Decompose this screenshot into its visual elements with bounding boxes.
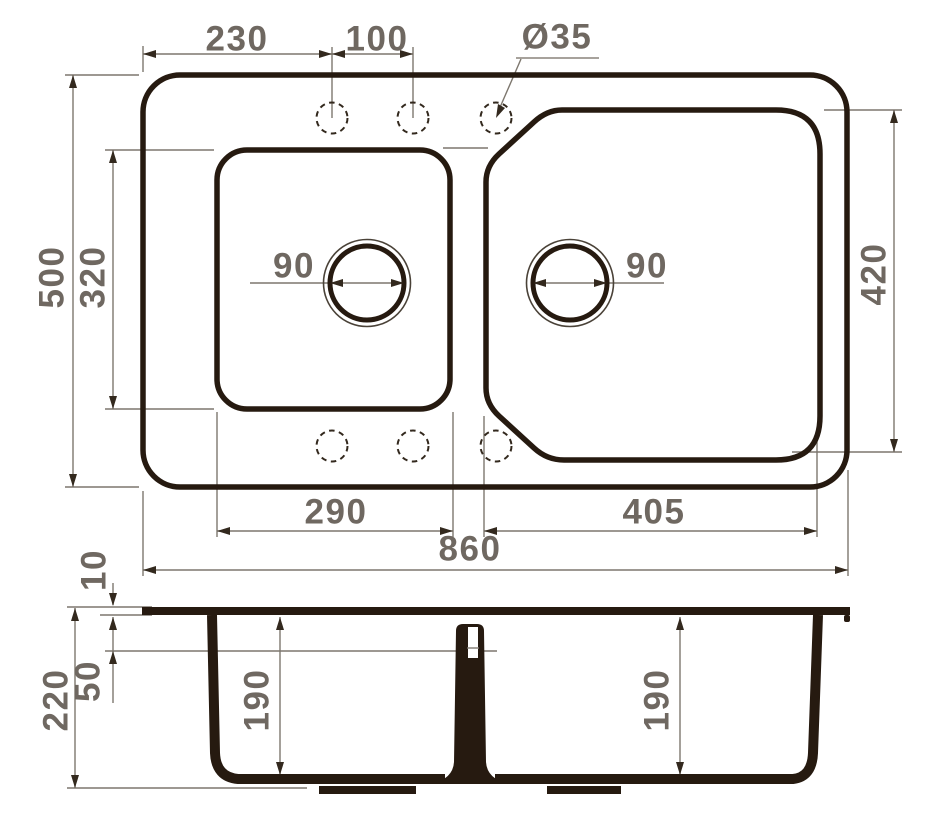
dim-overall-height: 220 bbox=[37, 669, 76, 732]
faucet-hole-bottom-2 bbox=[398, 431, 429, 462]
dim-right-bowl-width: 405 bbox=[623, 493, 686, 532]
dim-left-bowl-depth: 190 bbox=[238, 669, 277, 732]
dim-faucet-offset: 230 bbox=[206, 20, 269, 59]
dim-overall-width: 860 bbox=[439, 530, 502, 569]
left-bowl-outline bbox=[217, 150, 450, 409]
section-rim-right-edge bbox=[844, 615, 850, 622]
dim-right-drain: 90 bbox=[626, 247, 668, 286]
sink-technical-drawing: 230 100 Ø35 500 320 90 90 420 290 405 86… bbox=[0, 0, 935, 835]
divider-overflow-slot bbox=[468, 627, 478, 658]
faucet-hole-bottom-1 bbox=[317, 431, 348, 462]
left-drain-recess bbox=[319, 786, 416, 794]
top-view bbox=[143, 75, 847, 487]
dim-left-drain: 90 bbox=[273, 247, 315, 286]
dim-rim-thickness: 10 bbox=[75, 549, 114, 591]
dim-overall-depth: 500 bbox=[33, 246, 72, 309]
dim-faucet-diameter: Ø35 bbox=[522, 18, 593, 57]
section-rim bbox=[142, 607, 850, 615]
dim-left-bowl-length: 320 bbox=[74, 246, 113, 309]
dim-right-bowl-depth: 190 bbox=[638, 669, 677, 732]
faucet-hole-bottom-3 bbox=[481, 431, 512, 462]
sink-outer-outline bbox=[143, 75, 847, 487]
dim-faucet-spacing: 100 bbox=[346, 20, 409, 59]
dim-right-bowl-length: 420 bbox=[855, 243, 894, 306]
right-drain-recess bbox=[547, 786, 621, 794]
dim-left-bowl-width: 290 bbox=[305, 493, 368, 532]
